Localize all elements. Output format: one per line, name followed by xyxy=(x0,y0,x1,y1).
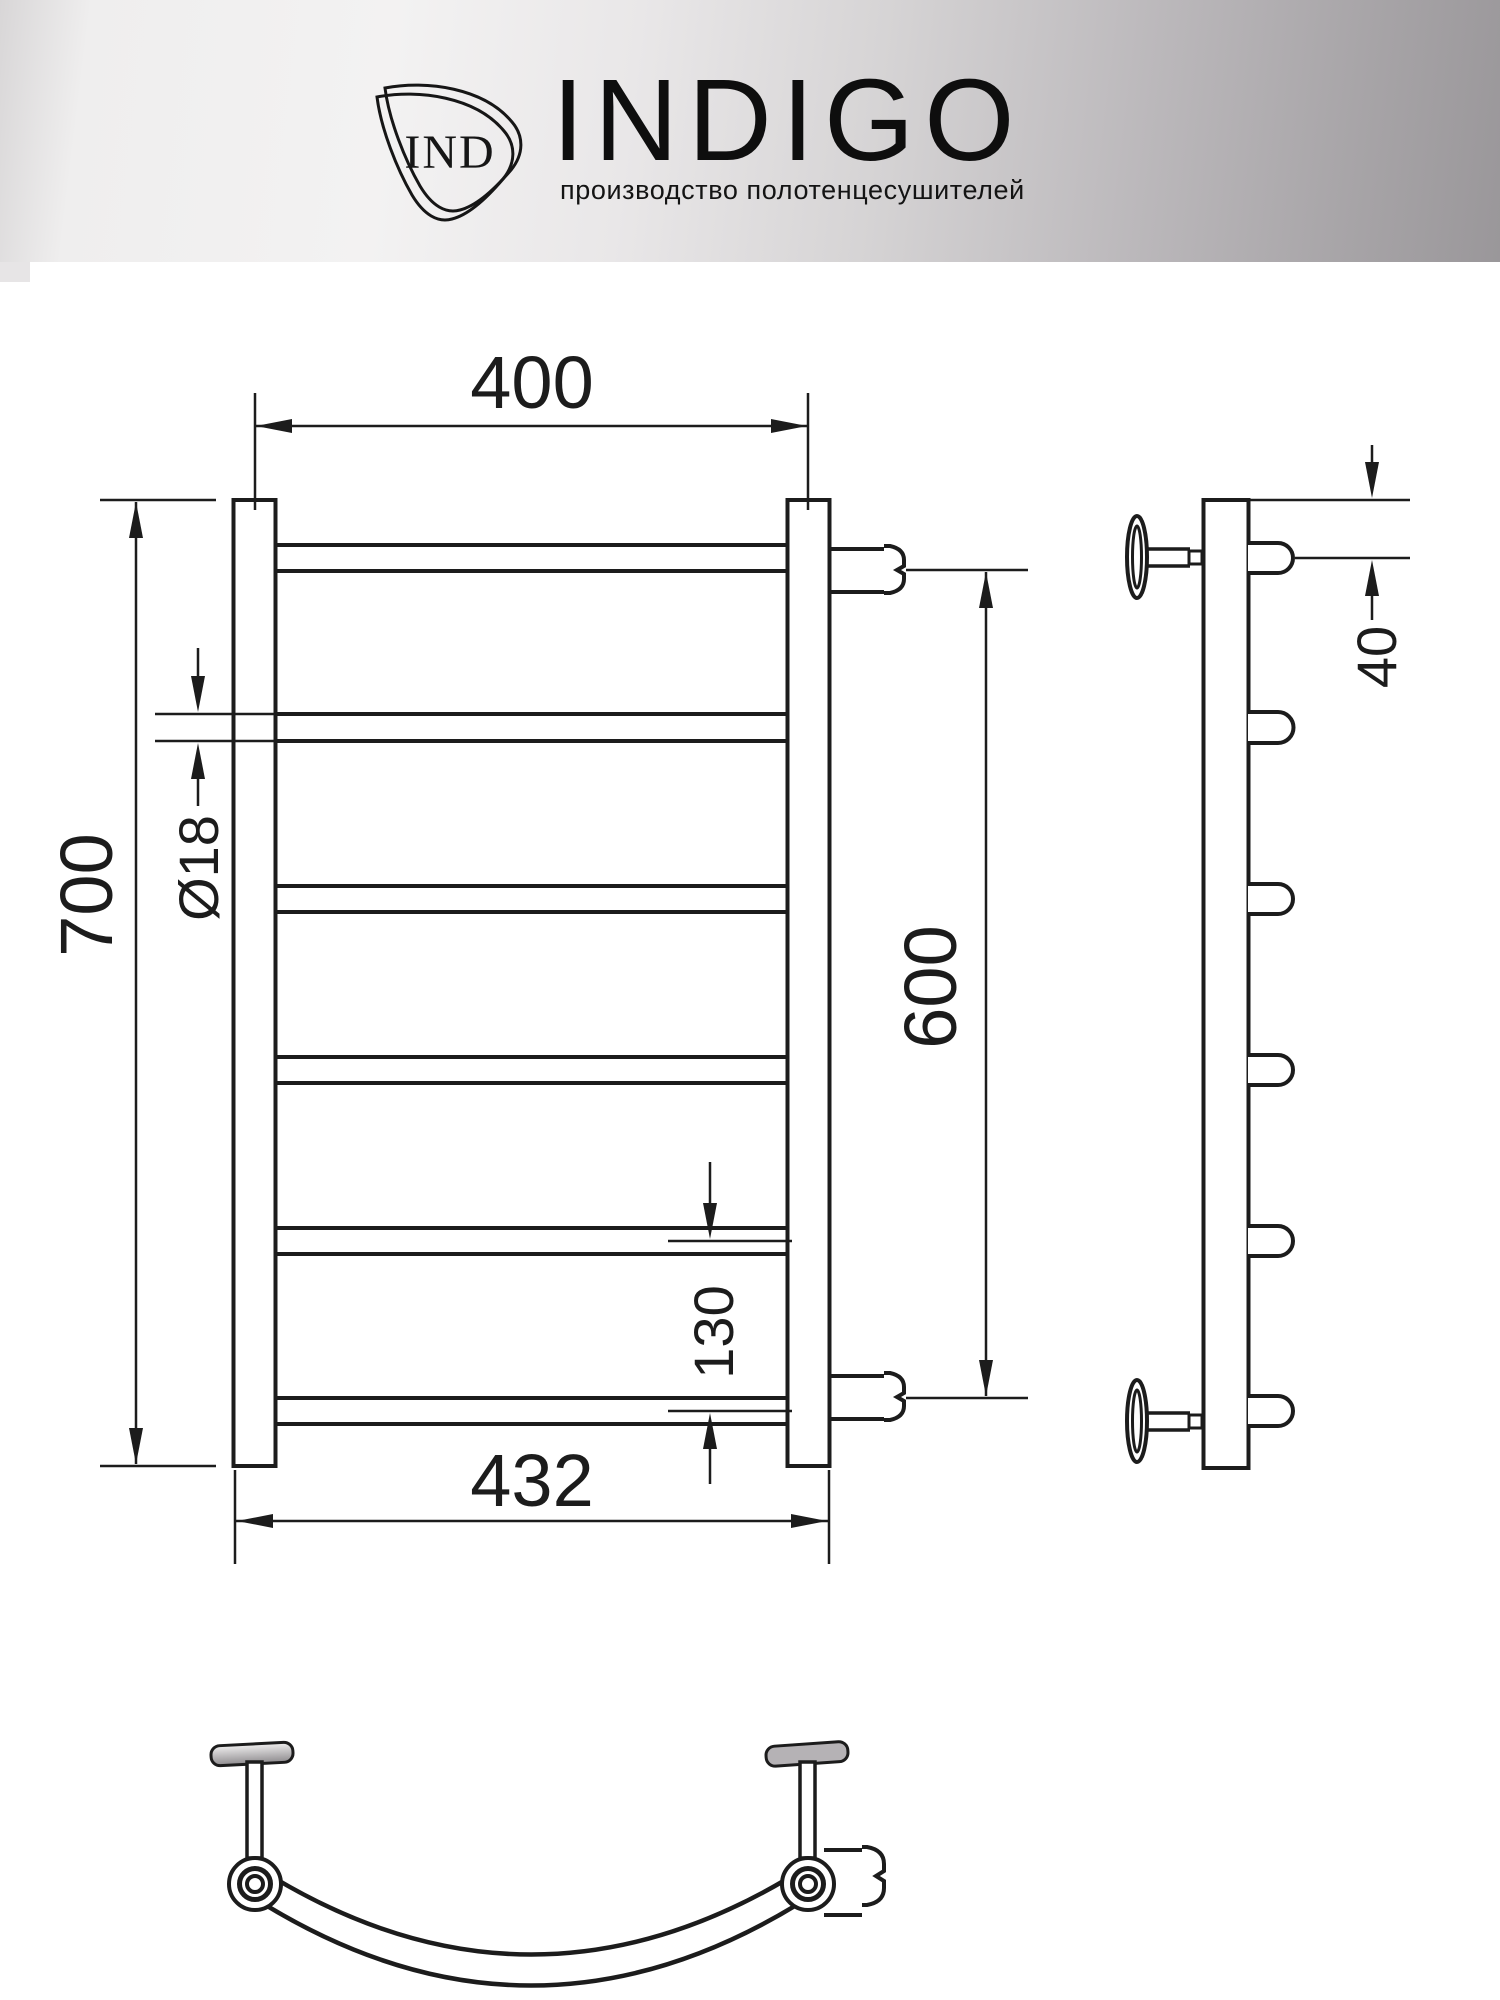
front-right-post xyxy=(788,500,830,1466)
top-connector xyxy=(830,546,904,593)
brand-tagline: производство полотенцесушителей xyxy=(560,177,1025,204)
bottom-view xyxy=(211,1741,884,1985)
page: { "header": { "brand": "INDIGO", "logo_m… xyxy=(0,0,1500,2000)
dim-label-connection: 600 xyxy=(889,925,972,1048)
front-view xyxy=(234,500,905,1466)
header-banner-edge xyxy=(0,262,30,282)
dim-label-top-width: 400 xyxy=(470,341,593,424)
dim-label-wall-offset: 40 xyxy=(1345,626,1408,688)
technical-drawing: 400 700 Ø18 600 130 432 xyxy=(0,0,1500,2000)
dim-overall-height-700 xyxy=(100,500,216,1466)
front-left-post xyxy=(234,500,276,1466)
side-view xyxy=(1127,500,1293,1468)
bottom-left-bracket xyxy=(211,1742,294,1910)
side-post xyxy=(1204,500,1249,1468)
side-tube-ends xyxy=(1248,543,1293,1426)
bottom-connector xyxy=(830,1373,904,1420)
logo-monogram: IND xyxy=(404,126,495,179)
dim-label-bottom-spacing: 130 xyxy=(682,1285,745,1378)
side-bracket-top xyxy=(1127,516,1202,598)
side-bracket-bottom xyxy=(1127,1380,1202,1462)
dim-label-tube-diameter: Ø18 xyxy=(167,815,230,921)
brand-logo: IND xyxy=(372,80,532,232)
dim-wall-offset-40 xyxy=(1249,445,1410,620)
dim-label-overall-height: 700 xyxy=(45,833,128,956)
dim-label-overall-width: 432 xyxy=(470,1439,593,1522)
curved-tube-outer xyxy=(276,1879,787,1955)
brand-name: INDIGO xyxy=(552,62,1024,178)
